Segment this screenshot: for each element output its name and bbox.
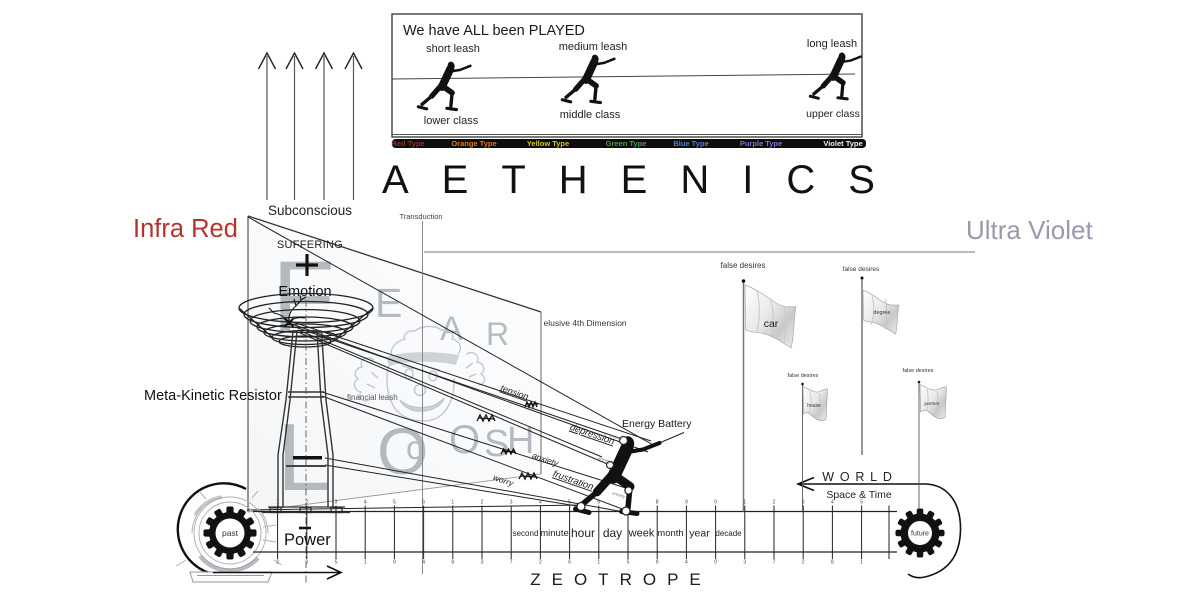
- svg-text:house: house: [807, 403, 821, 409]
- svg-text:8: 8: [831, 560, 834, 566]
- svg-text:false desires: false desires: [721, 261, 766, 270]
- svg-text:second: second: [513, 529, 539, 538]
- svg-text:3: 3: [481, 560, 484, 566]
- svg-text:Purple Type: Purple Type: [740, 139, 782, 148]
- svg-text:5: 5: [627, 560, 630, 566]
- svg-text:2: 2: [539, 560, 542, 566]
- svg-text:year: year: [689, 528, 710, 540]
- svg-text:Violet Type: Violet Type: [823, 139, 862, 148]
- svg-text:decade: decade: [715, 529, 742, 538]
- svg-text:false desires: false desires: [788, 373, 819, 379]
- svg-text:2: 2: [305, 500, 308, 506]
- svg-text:9: 9: [656, 560, 659, 566]
- svg-text:6: 6: [597, 500, 600, 506]
- svg-text:Power: Power: [284, 531, 331, 549]
- svg-text:Orange Type: Orange Type: [451, 139, 496, 148]
- svg-text:4: 4: [364, 500, 367, 506]
- svg-text:4: 4: [422, 560, 425, 566]
- svg-text:degree: degree: [873, 310, 890, 316]
- svg-text:past: past: [222, 528, 239, 538]
- svg-text:day: day: [603, 526, 622, 540]
- svg-text:9: 9: [393, 560, 396, 566]
- svg-text:A: A: [440, 310, 463, 348]
- svg-text:false desires: false desires: [843, 266, 880, 273]
- svg-text:3: 3: [743, 560, 746, 566]
- svg-text:long leash: long leash: [807, 38, 857, 50]
- svg-text:middle class: middle class: [560, 109, 621, 121]
- svg-text:Red Type: Red Type: [391, 139, 424, 148]
- svg-text:9: 9: [685, 500, 688, 506]
- svg-text:Ultra Violet: Ultra Violet: [966, 215, 1093, 245]
- svg-text:Blue Type: Blue Type: [673, 139, 708, 148]
- svg-text:false desires: false desires: [903, 368, 934, 374]
- svg-text:short leash: short leash: [426, 43, 480, 55]
- svg-text:1: 1: [597, 560, 600, 566]
- svg-text:2: 2: [773, 500, 776, 506]
- svg-text:1: 1: [364, 560, 367, 566]
- svg-text:6: 6: [568, 560, 571, 566]
- svg-text:H: H: [507, 420, 534, 462]
- svg-text:2: 2: [802, 560, 805, 566]
- svg-text:Green Type: Green Type: [606, 139, 647, 148]
- svg-text:car: car: [764, 318, 779, 330]
- svg-text:future: future: [911, 531, 929, 538]
- svg-text:SUFFERING: SUFFERING: [277, 239, 343, 251]
- svg-text:5: 5: [568, 500, 571, 506]
- svg-text:elusive 4th Dimension: elusive 4th Dimension: [544, 318, 627, 328]
- svg-text:6: 6: [422, 500, 425, 506]
- svg-text:7: 7: [773, 560, 776, 566]
- svg-text:0: 0: [305, 560, 308, 566]
- svg-text:week: week: [628, 528, 655, 540]
- svg-text:7: 7: [510, 560, 513, 566]
- svg-text:5: 5: [335, 560, 338, 566]
- svg-text:1: 1: [276, 500, 279, 506]
- svg-text:3: 3: [335, 500, 338, 506]
- svg-text:4: 4: [685, 560, 688, 566]
- svg-text:medium leash: medium leash: [559, 41, 627, 53]
- svg-text:1: 1: [860, 560, 863, 566]
- svg-text:3: 3: [510, 500, 513, 506]
- svg-text:Subconscious: Subconscious: [268, 203, 352, 218]
- svg-text:Transduction: Transduction: [399, 212, 442, 221]
- svg-text:0: 0: [714, 560, 717, 566]
- svg-text:1: 1: [451, 500, 454, 506]
- svg-text:2: 2: [481, 500, 484, 506]
- svg-text:Energy Battery: Energy Battery: [622, 418, 692, 430]
- svg-text:Meta-Kinetic Resistor: Meta-Kinetic Resistor: [144, 388, 282, 404]
- svg-text:partner: partner: [924, 401, 940, 407]
- svg-text:E: E: [375, 280, 402, 326]
- svg-text:minute: minute: [540, 528, 569, 539]
- svg-text:We have ALL been PLAYED: We have ALL been PLAYED: [403, 23, 585, 39]
- svg-text:8: 8: [451, 560, 454, 566]
- svg-text:AETHENICS: AETHENICS: [382, 158, 908, 202]
- svg-text:Yellow Type: Yellow Type: [527, 139, 569, 148]
- svg-text:upper class: upper class: [806, 108, 860, 120]
- svg-text:2: 2: [276, 560, 279, 566]
- svg-text:5: 5: [393, 500, 396, 506]
- svg-text:ZEOTROPE: ZEOTROPE: [530, 570, 712, 589]
- svg-text:month: month: [657, 528, 683, 539]
- svg-text:lower class: lower class: [424, 115, 479, 127]
- svg-text:0: 0: [714, 500, 717, 506]
- svg-text:financial leash: financial leash: [347, 393, 398, 402]
- svg-text:o: o: [406, 429, 424, 466]
- svg-text:WORLD: WORLD: [822, 470, 898, 484]
- svg-text:R: R: [486, 316, 509, 352]
- svg-text:Infra Red: Infra Red: [133, 215, 238, 243]
- svg-text:Space & Time: Space & Time: [826, 489, 892, 501]
- svg-text:4: 4: [539, 500, 542, 506]
- svg-text:hour: hour: [571, 526, 595, 540]
- svg-text:8: 8: [656, 500, 659, 506]
